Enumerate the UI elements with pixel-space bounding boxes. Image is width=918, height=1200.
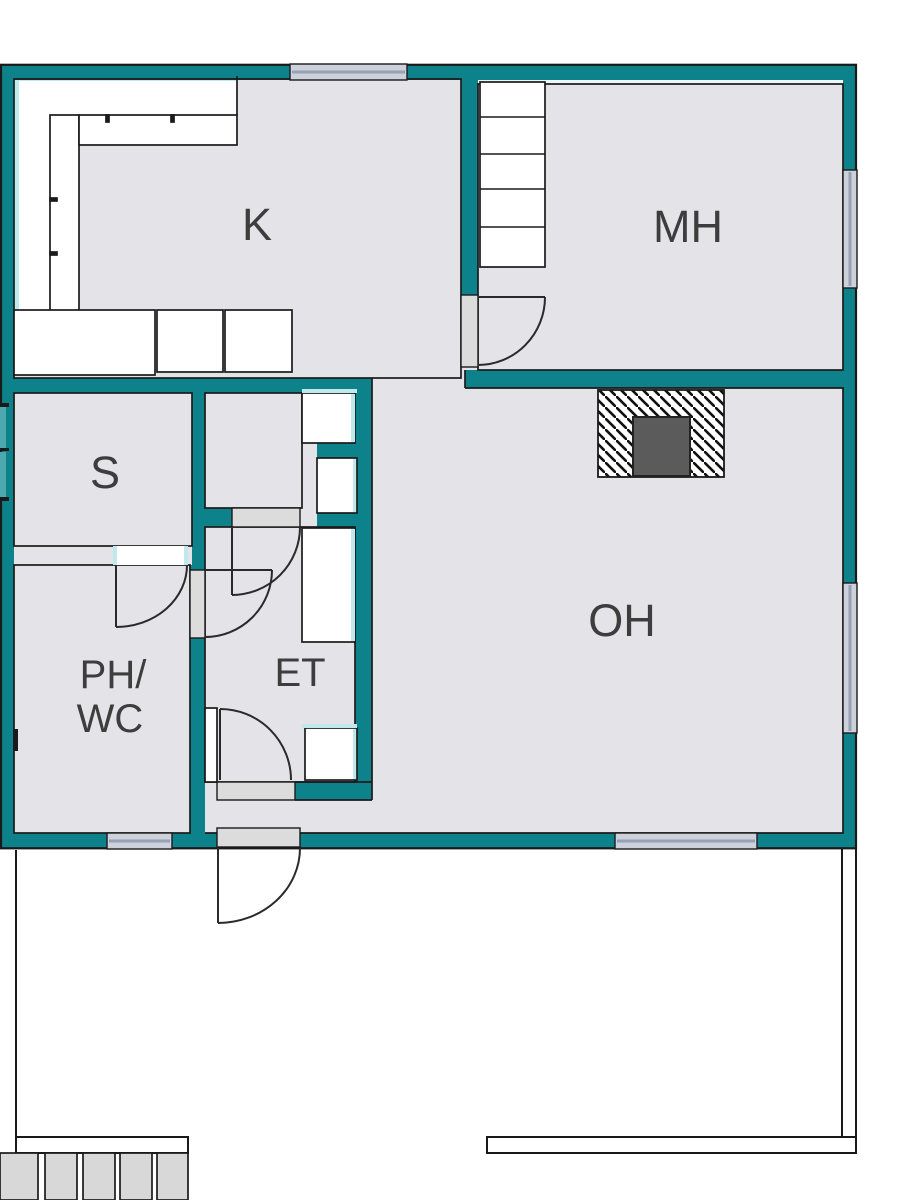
room-label-livingroom: OH (588, 595, 656, 646)
ext-stair-tread (157, 1153, 188, 1200)
threshold-vestibule-door (217, 782, 295, 800)
exterior-stairs (0, 1153, 188, 1200)
room-label-entry: ET (274, 651, 325, 695)
threshold-entrance-door (217, 828, 300, 847)
wall-midroom-bottom-stub (205, 508, 232, 527)
fireplace (598, 390, 724, 477)
wall-face-strip (351, 394, 355, 442)
ext-stair-tread (120, 1153, 152, 1200)
floor-plan-drawing: K MH S PH/ WC ET OH (0, 0, 918, 1200)
counter-bottom-large (14, 310, 155, 375)
terrace (16, 848, 856, 1153)
window-kitchen-top (290, 64, 407, 80)
stairs-body (480, 82, 545, 267)
closet-2 (317, 458, 357, 513)
wall-face-strip (302, 724, 357, 728)
counter-bottom-mid (157, 310, 223, 372)
wall-exterior-top (0, 64, 857, 80)
room-label-sauna: S (90, 447, 120, 498)
floor-plan-page: K MH S PH/ WC ET OH (0, 0, 918, 1200)
closet-3 (302, 528, 355, 642)
wall-face-strip (113, 546, 117, 565)
ext-stair-tread (0, 1153, 38, 1200)
wall-face-strip (351, 529, 355, 641)
window-oh-right (843, 583, 857, 733)
wall-closet-stub-a (317, 443, 372, 458)
wall-face-strip (302, 389, 357, 393)
window-mh-right (843, 170, 857, 288)
closet-4 (305, 728, 357, 780)
counter-top-run (79, 115, 237, 145)
window-phwc-left-tick (13, 729, 18, 751)
room-label-phwc-line1: PH/ (80, 653, 148, 697)
counter-tick (171, 115, 174, 122)
threshold-midroom-door (232, 508, 300, 527)
wall-vestibule-inner (295, 782, 372, 800)
closet-1 (302, 393, 355, 443)
threshold-phwc-door (190, 570, 205, 638)
counter-tick (50, 198, 57, 201)
room-label-bedroom: MH (653, 201, 723, 252)
wall-face-strip (184, 546, 188, 565)
ext-stair-tread (45, 1153, 77, 1200)
sauna-door-gap (113, 546, 188, 565)
room-label-phwc-line2: WC (77, 697, 144, 741)
interior-stairs (480, 82, 545, 267)
ext-stair-tread (83, 1153, 115, 1200)
counter-bottom-right (225, 310, 292, 372)
window-oh-bottom (615, 833, 757, 849)
counter-tick (106, 115, 109, 122)
wall-kitchen-mh-divider (461, 80, 478, 295)
wall-face-strip (353, 729, 356, 779)
wall-mh-bottom (465, 370, 856, 388)
terrace-step-band-right (487, 1137, 856, 1153)
wall-closet-stub-b (317, 513, 372, 528)
entrance-door-arc (218, 848, 300, 923)
room-label-kitchen: K (242, 199, 272, 250)
threshold-mh-door (461, 295, 478, 367)
counter-tick (50, 252, 57, 255)
counter-left-run (50, 115, 79, 312)
fireplace-flue (633, 417, 690, 476)
terrace-step-band-left (16, 1137, 188, 1153)
wall-sauna-right (192, 378, 205, 565)
window-phwc-bottom (107, 833, 172, 849)
vestibule-wall-stub (205, 708, 217, 782)
door-gap (113, 546, 188, 565)
wall-face-strip (353, 459, 356, 512)
